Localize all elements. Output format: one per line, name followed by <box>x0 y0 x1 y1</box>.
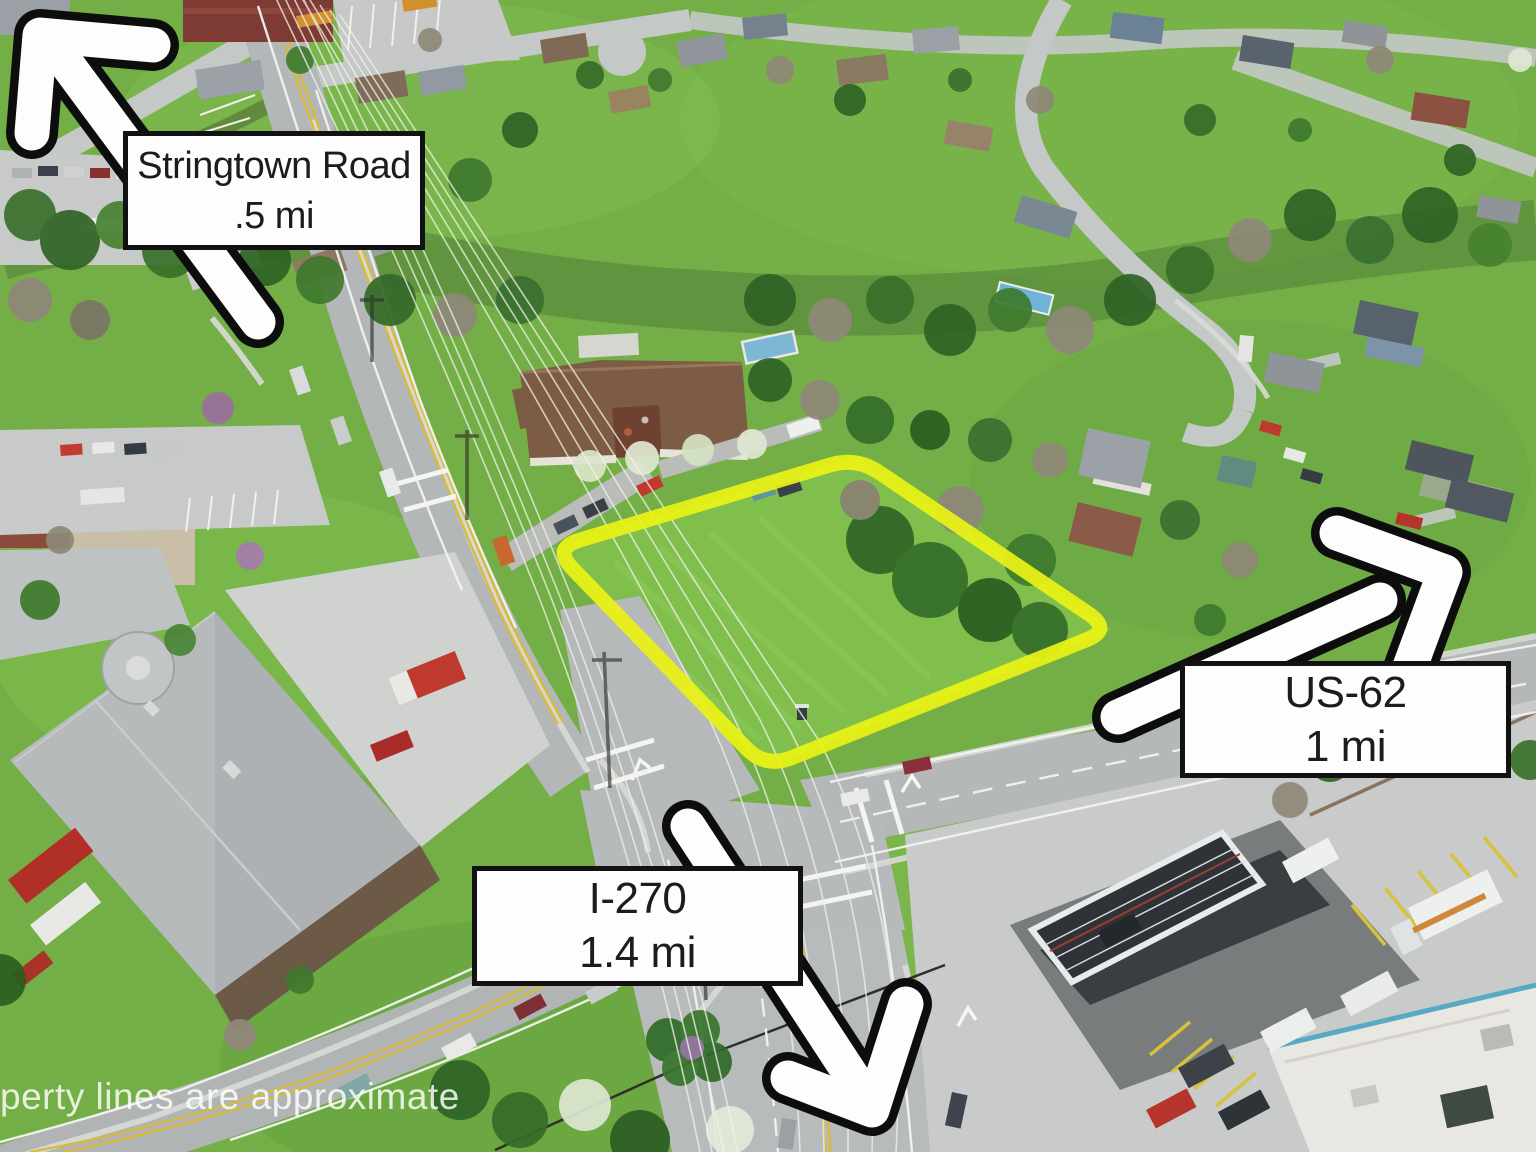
label-distance: 1.4 mi <box>579 926 696 980</box>
label-title: Stringtown Road <box>137 141 410 191</box>
label-title: US-62 <box>1284 666 1406 720</box>
label-distance: 1 mi <box>1305 720 1386 774</box>
label-us-62: US-62 1 mi <box>1180 661 1511 778</box>
label-title: I-270 <box>589 872 687 926</box>
label-distance: .5 mi <box>234 191 314 241</box>
watermark-text: perty lines are approximate <box>0 1076 460 1118</box>
label-stringtown-road: Stringtown Road .5 mi <box>123 131 425 250</box>
parcel-sign <box>797 706 807 720</box>
aerial-photo-view: Stringtown Road .5 mi US-62 1 mi I-270 1… <box>0 0 1536 1152</box>
label-i-270: I-270 1.4 mi <box>472 866 803 986</box>
